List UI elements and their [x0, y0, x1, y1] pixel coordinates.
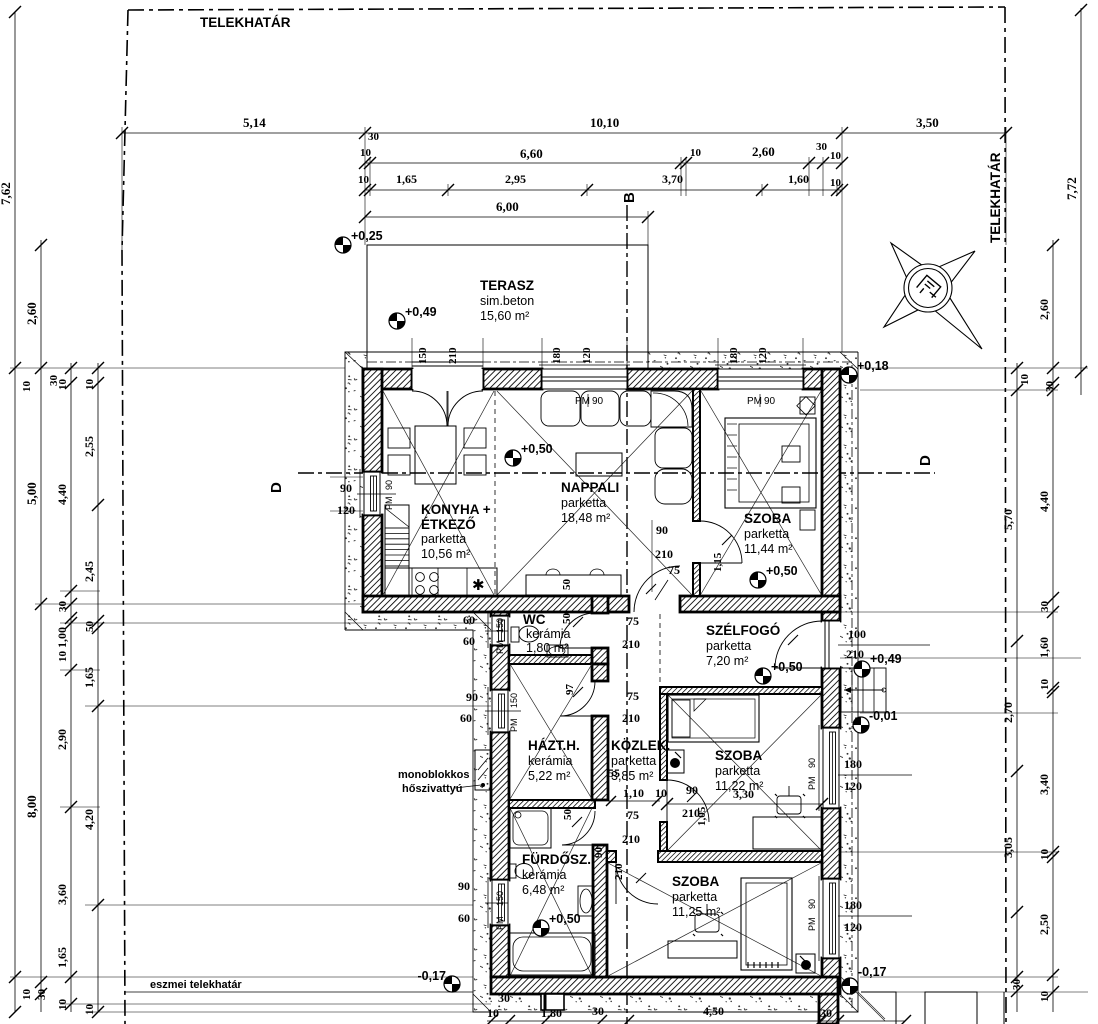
svg-text:NAPPALI: NAPPALI — [561, 480, 619, 495]
svg-text:18,48 m²: 18,48 m² — [561, 511, 610, 525]
svg-text:PM: PM — [807, 777, 817, 791]
svg-text:2,50: 2,50 — [1037, 914, 1051, 935]
svg-text:KONYHA +: KONYHA + — [421, 502, 491, 517]
svg-text:ÉTKEZŐ: ÉTKEZŐ — [421, 517, 476, 532]
svg-text:10: 10 — [21, 989, 33, 1001]
svg-text:10: 10 — [830, 150, 842, 162]
svg-text:5,14: 5,14 — [243, 115, 266, 130]
svg-text:75: 75 — [627, 614, 639, 628]
svg-text:210: 210 — [622, 832, 640, 846]
svg-text:30: 30 — [1011, 979, 1023, 991]
svg-text:-0,17: -0,17 — [858, 965, 887, 979]
svg-text:PM: PM — [509, 719, 519, 733]
svg-text:parketta: parketta — [715, 764, 760, 778]
svg-text:10: 10 — [1019, 374, 1031, 386]
svg-text:150: 150 — [417, 347, 429, 364]
svg-text:2,70: 2,70 — [1001, 702, 1015, 723]
svg-text:+0,25: +0,25 — [351, 229, 383, 243]
svg-text:180: 180 — [728, 347, 740, 364]
svg-text:+0,18: +0,18 — [857, 359, 889, 373]
svg-text:90: 90 — [384, 480, 394, 490]
svg-text:97: 97 — [564, 684, 576, 696]
svg-text:2,95: 2,95 — [505, 172, 526, 186]
svg-text:180: 180 — [844, 898, 862, 912]
svg-text:11,25 m²: 11,25 m² — [672, 905, 720, 919]
svg-text:210: 210 — [622, 637, 640, 651]
svg-text:+0,50: +0,50 — [521, 442, 553, 456]
svg-text:50: 50 — [561, 613, 573, 625]
svg-text:monoblokkos: monoblokkos — [398, 769, 470, 781]
svg-text:parketta: parketta — [744, 527, 789, 541]
svg-text:4,40: 4,40 — [55, 484, 69, 505]
svg-text:90: 90 — [686, 783, 698, 797]
svg-text:210: 210 — [613, 863, 625, 880]
svg-text:1,60: 1,60 — [1037, 637, 1051, 658]
svg-text:10: 10 — [487, 1006, 499, 1020]
svg-text:kerámia: kerámia — [526, 627, 571, 641]
svg-text:-0,17: -0,17 — [418, 969, 447, 983]
svg-text:3,70: 3,70 — [662, 172, 683, 186]
svg-text:sim.beton: sim.beton — [480, 294, 534, 308]
svg-text:+0,50: +0,50 — [766, 564, 798, 578]
svg-text:90: 90 — [592, 396, 604, 407]
svg-text:120: 120 — [337, 503, 355, 517]
svg-text:PM: PM — [807, 918, 817, 932]
svg-text:3,50: 3,50 — [916, 115, 939, 130]
svg-text:hőszivattyú: hőszivattyú — [402, 783, 463, 795]
svg-text:90: 90 — [593, 847, 605, 859]
svg-text:1,80 m²: 1,80 m² — [526, 641, 568, 655]
svg-text:1,80: 1,80 — [541, 1006, 562, 1020]
svg-text:+0,49: +0,49 — [870, 652, 902, 666]
svg-text:+0,50: +0,50 — [549, 912, 581, 926]
svg-text:PM: PM — [384, 497, 394, 511]
svg-text:210: 210 — [447, 347, 459, 364]
svg-text:parketta: parketta — [706, 639, 751, 653]
svg-text:30: 30 — [820, 1006, 832, 1020]
svg-text:parketta: parketta — [611, 754, 656, 768]
svg-text:150: 150 — [495, 891, 505, 906]
svg-text:✱: ✱ — [472, 577, 485, 594]
svg-text:10: 10 — [1039, 679, 1051, 691]
svg-text:60: 60 — [463, 613, 475, 627]
svg-text:180: 180 — [844, 757, 862, 771]
svg-text:4,20: 4,20 — [82, 809, 96, 830]
svg-text:30: 30 — [1039, 601, 1051, 613]
svg-text:SZÉLFOGÓ: SZÉLFOGÓ — [706, 623, 780, 638]
svg-text:10,56 m²: 10,56 m² — [421, 547, 470, 561]
svg-text:120: 120 — [757, 347, 769, 364]
svg-text:50: 50 — [84, 621, 96, 633]
svg-text:2,90: 2,90 — [55, 729, 69, 750]
svg-text:2,60: 2,60 — [1037, 299, 1051, 320]
svg-text:PM: PM — [495, 917, 505, 931]
svg-text:1,65: 1,65 — [396, 172, 417, 186]
svg-text:30: 30 — [816, 141, 828, 153]
svg-text:-0,01: -0,01 — [869, 709, 898, 723]
svg-text:90: 90 — [764, 396, 776, 407]
svg-text:3,85 m²: 3,85 m² — [611, 769, 653, 783]
svg-text:30: 30 — [592, 1004, 604, 1018]
svg-text:4,40: 4,40 — [1037, 491, 1051, 512]
svg-text:90: 90 — [807, 758, 817, 768]
svg-text:15,60 m²: 15,60 m² — [480, 309, 529, 323]
svg-text:50: 50 — [562, 809, 574, 821]
svg-text:2,60: 2,60 — [752, 144, 775, 159]
svg-text:120: 120 — [581, 347, 593, 364]
svg-text:60: 60 — [460, 711, 472, 725]
svg-text:6,00: 6,00 — [496, 199, 519, 214]
svg-text:5,70: 5,70 — [1001, 509, 1015, 530]
svg-text:3,40: 3,40 — [1037, 774, 1051, 795]
svg-text:10: 10 — [57, 651, 69, 663]
svg-text:10: 10 — [830, 177, 842, 189]
svg-text:10: 10 — [21, 381, 33, 393]
svg-text:11,22 m²: 11,22 m² — [715, 779, 763, 793]
svg-text:4,50: 4,50 — [703, 1004, 724, 1018]
svg-text:8,00: 8,00 — [24, 795, 39, 818]
svg-text:1,05: 1,05 — [696, 806, 708, 826]
svg-text:10: 10 — [1039, 849, 1051, 861]
svg-text:6,48 m²: 6,48 m² — [522, 883, 564, 897]
svg-text:30: 30 — [57, 601, 69, 613]
svg-text:90: 90 — [458, 879, 470, 893]
svg-text:90: 90 — [340, 481, 352, 495]
svg-text:parketta: parketta — [561, 496, 606, 510]
svg-text:7,72: 7,72 — [1064, 177, 1079, 200]
svg-text:60: 60 — [463, 634, 475, 648]
svg-text:1,15: 1,15 — [712, 552, 724, 572]
svg-text:50: 50 — [561, 579, 573, 591]
svg-text:SZOBA: SZOBA — [744, 511, 792, 526]
svg-text:7,20 m²: 7,20 m² — [706, 654, 748, 668]
svg-text:210: 210 — [846, 647, 864, 661]
svg-text:6,60: 6,60 — [520, 146, 543, 161]
svg-text:5,00: 5,00 — [24, 482, 39, 505]
svg-text:60: 60 — [458, 911, 470, 925]
svg-text:kerámia: kerámia — [522, 868, 567, 882]
svg-text:5,22 m²: 5,22 m² — [528, 769, 570, 783]
svg-text:D: D — [268, 482, 285, 493]
svg-text:120: 120 — [844, 920, 862, 934]
svg-text:1,00: 1,00 — [55, 627, 69, 648]
svg-text:30: 30 — [368, 131, 380, 143]
svg-text:3,60: 3,60 — [55, 884, 69, 905]
svg-text:1,60: 1,60 — [788, 172, 809, 186]
svg-text:1,10: 1,10 — [623, 786, 644, 800]
svg-text:210: 210 — [655, 547, 673, 561]
svg-text:75: 75 — [627, 808, 639, 822]
svg-text:10,10: 10,10 — [590, 115, 619, 130]
svg-text:75: 75 — [668, 563, 680, 577]
svg-text:D: D — [917, 455, 934, 466]
svg-text:90: 90 — [807, 899, 817, 909]
svg-text:WC: WC — [523, 612, 546, 627]
svg-text:SZOBA: SZOBA — [672, 874, 720, 889]
svg-text:2,55: 2,55 — [82, 436, 96, 457]
svg-text:TELEKHATÁR: TELEKHATÁR — [200, 15, 291, 30]
svg-text:100: 100 — [848, 627, 866, 641]
svg-text:10: 10 — [358, 174, 370, 186]
svg-text:3,05: 3,05 — [1001, 837, 1015, 858]
svg-text:B: B — [621, 192, 638, 203]
svg-text:90: 90 — [466, 690, 478, 704]
svg-text:+0,50: +0,50 — [771, 660, 803, 674]
svg-text:30: 30 — [498, 991, 510, 1005]
svg-text:11,44 m²: 11,44 m² — [744, 542, 792, 556]
svg-text:90: 90 — [656, 523, 668, 537]
svg-text:eszmei telekhatár: eszmei telekhatár — [150, 979, 242, 991]
svg-text:75: 75 — [627, 689, 639, 703]
svg-text:2,60: 2,60 — [24, 302, 39, 325]
svg-text:PM: PM — [495, 641, 505, 655]
svg-text:parketta: parketta — [421, 532, 466, 546]
svg-text:30: 30 — [1044, 381, 1056, 393]
svg-text:10: 10 — [84, 1004, 96, 1016]
svg-text:2,45: 2,45 — [82, 561, 96, 582]
svg-text:1,65: 1,65 — [55, 947, 69, 968]
svg-text:10: 10 — [84, 379, 96, 391]
svg-text:TERASZ: TERASZ — [480, 278, 534, 293]
svg-text:210: 210 — [622, 711, 640, 725]
svg-text:120: 120 — [844, 779, 862, 793]
svg-text:7,62: 7,62 — [0, 182, 13, 205]
svg-text:30: 30 — [48, 375, 60, 387]
svg-text:180: 180 — [551, 347, 563, 364]
svg-text:+0,49: +0,49 — [405, 305, 437, 319]
svg-text:KÖZLEK.: KÖZLEK. — [611, 738, 670, 753]
svg-text:150: 150 — [509, 693, 519, 708]
svg-text:10: 10 — [690, 147, 702, 159]
svg-text:SZOBA: SZOBA — [715, 748, 763, 763]
svg-text:HÁZT.H.: HÁZT.H. — [528, 738, 580, 753]
svg-text:kerámia: kerámia — [528, 754, 573, 768]
svg-text:FÜRDŐSZ.: FÜRDŐSZ. — [522, 852, 591, 867]
svg-text:30: 30 — [36, 989, 48, 1001]
svg-text:TELEKHATÁR: TELEKHATÁR — [988, 152, 1003, 243]
svg-text:parketta: parketta — [672, 890, 717, 904]
